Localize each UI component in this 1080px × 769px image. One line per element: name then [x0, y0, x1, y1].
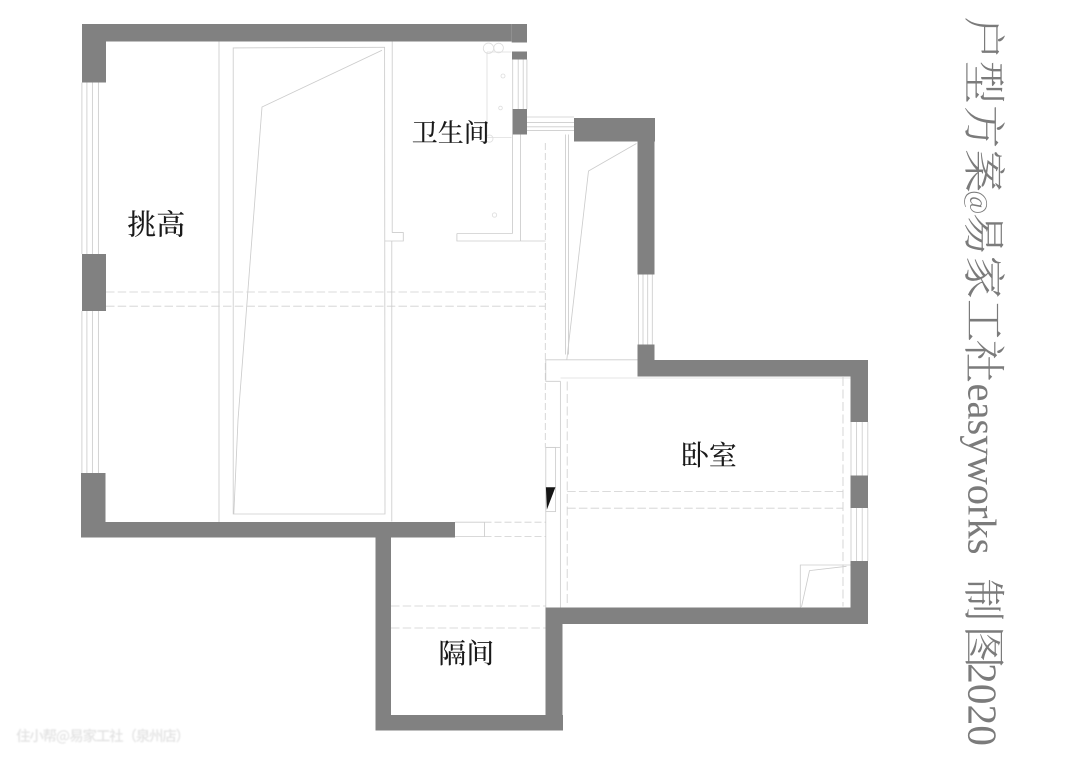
svg-text:easyworks: easyworks: [960, 384, 1005, 555]
svg-text:2020: 2020: [960, 663, 1006, 746]
